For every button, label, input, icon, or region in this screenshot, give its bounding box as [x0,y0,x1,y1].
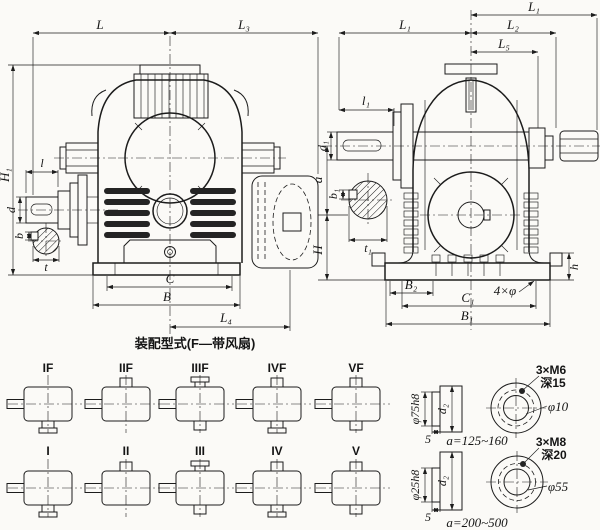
dim-label-C: C [166,271,175,286]
detail-a-hub-dia: d₂ [435,404,449,414]
dim-label-l1: l₁ [362,93,370,108]
variant-icon-IF [7,375,82,433]
detail-a-screws: 3×M6 [536,363,567,377]
technical-drawing-page: L L₃ H₁ [0,0,600,530]
detail-a-bore: φ10 [548,399,569,414]
dim-label-C1: C₁ [461,290,474,305]
variant-icon-IIF [85,375,160,433]
dim-label-L3: L₃ [237,17,250,32]
variant-row-fan: IF IIF IIIF IVF VF [7,361,390,433]
dim-label-h: h [567,264,581,270]
dim-label-L1: L₁ [398,17,411,32]
detail-b-bore: φ55 [548,479,569,494]
detail-b-shaft-dia: φ25h8 [408,470,422,501]
worm-gear-reducer-drawing: L L₃ H₁ [0,0,600,530]
variant-label-IV: IV [271,444,282,458]
fan-housing [252,176,318,268]
detail-a-range: a=125~160 [446,433,508,448]
front-view: L L₃ H₁ [0,17,318,338]
dim-label-H1: H₁ [0,168,12,183]
variant-icon-III [159,459,234,517]
dim-label-t: t [44,260,48,274]
dim-label-L5: L₅ [497,36,510,51]
shaft-detail-large: φ25h8 5 d₂ a=200~500 3×M8 深20 φ55 [408,435,569,530]
variant-label-II: II [123,444,130,458]
variant-row-plain: I II III IV V [7,444,390,517]
dim-label-holes: 4×φ [494,283,516,298]
detail-b-hub-dia: d₂ [435,476,449,486]
detail-b-plate-width: 5 [425,510,431,524]
variant-icon-IVF [236,375,311,433]
dim-label-l: l [40,156,44,170]
variant-icon-IV [236,459,311,517]
dim-label-b1: b₁ [326,189,340,199]
variant-icon-IIIF [159,375,234,433]
detail-a-plate-width: 5 [425,432,431,446]
detail-b-screws: 3×M8 [536,435,567,449]
dim-label-B1: B₁ [461,308,473,323]
dim-label-L4: L₄ [219,310,232,325]
side-view: L₁ L₁ L₂ L₅ l₁ d₁ [310,0,600,330]
dim-label-B: B [163,289,171,304]
dim-label-B2: B₂ [405,277,418,292]
variant-label-I: I [46,444,49,458]
dim-label-L2: L₂ [506,17,519,32]
dim-label-L: L [95,17,103,32]
dim-label-b: b [12,233,26,239]
variant-icon-V [315,459,390,517]
dim-label-H: H [310,245,325,256]
dim-label-d: d [4,206,18,213]
detail-a-shaft-dia: φ75h8 [408,394,422,425]
assembly-caption: 装配型式(F—带风扇) [134,336,256,351]
detail-b-depth: 深20 [541,447,567,462]
variant-label-V: V [352,444,360,458]
variant-label-VF: VF [348,361,363,375]
dim-label-a: a [310,176,325,183]
variant-label-IIF: IIF [119,361,133,375]
detail-a-depth: 深15 [540,375,566,390]
dim-label-L1-top: L₁ [527,0,540,14]
dim-label-t1: t₁ [364,241,372,255]
variant-label-IVF: IVF [268,361,287,375]
variant-icon-I [7,459,82,517]
variant-icon-II [85,459,160,517]
variant-icon-VF [315,375,390,433]
variant-label-III: III [195,444,205,458]
variant-label-IIIF: IIIF [191,361,208,375]
variant-label-IF: IF [43,361,54,375]
detail-b-range: a=200~500 [446,515,508,530]
